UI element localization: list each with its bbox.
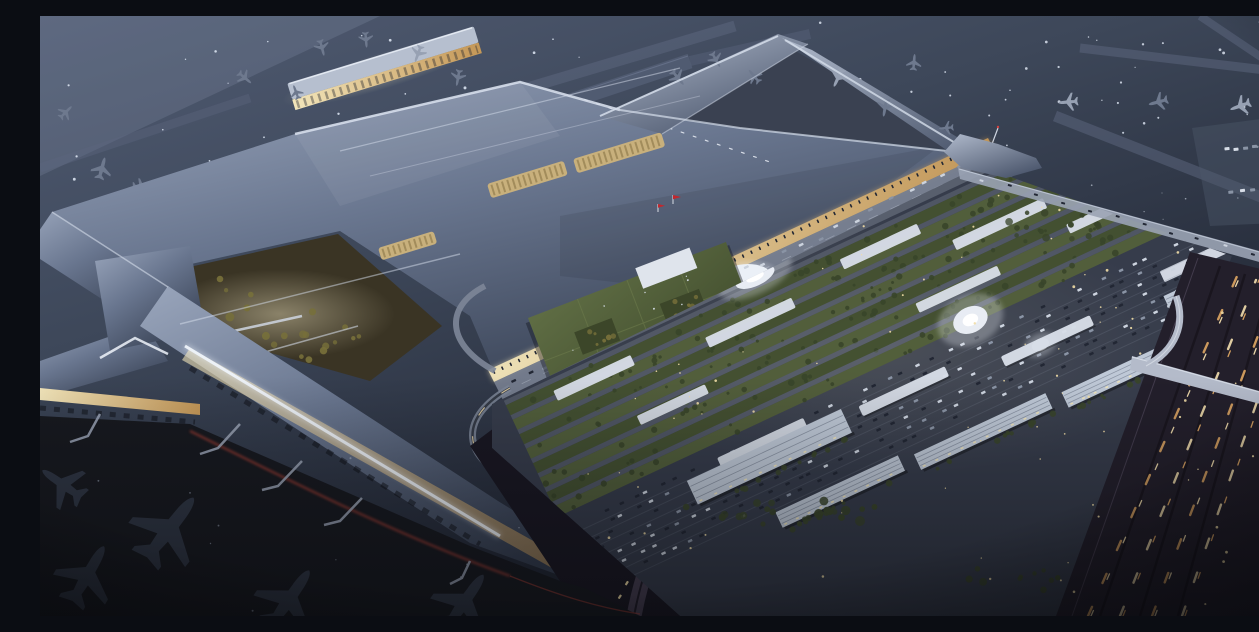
rendering-canvas (40, 16, 1259, 616)
airport-aerial-rendering: Aerial dusk rendering of a large airport… (40, 16, 1259, 616)
vignette (40, 16, 1259, 616)
